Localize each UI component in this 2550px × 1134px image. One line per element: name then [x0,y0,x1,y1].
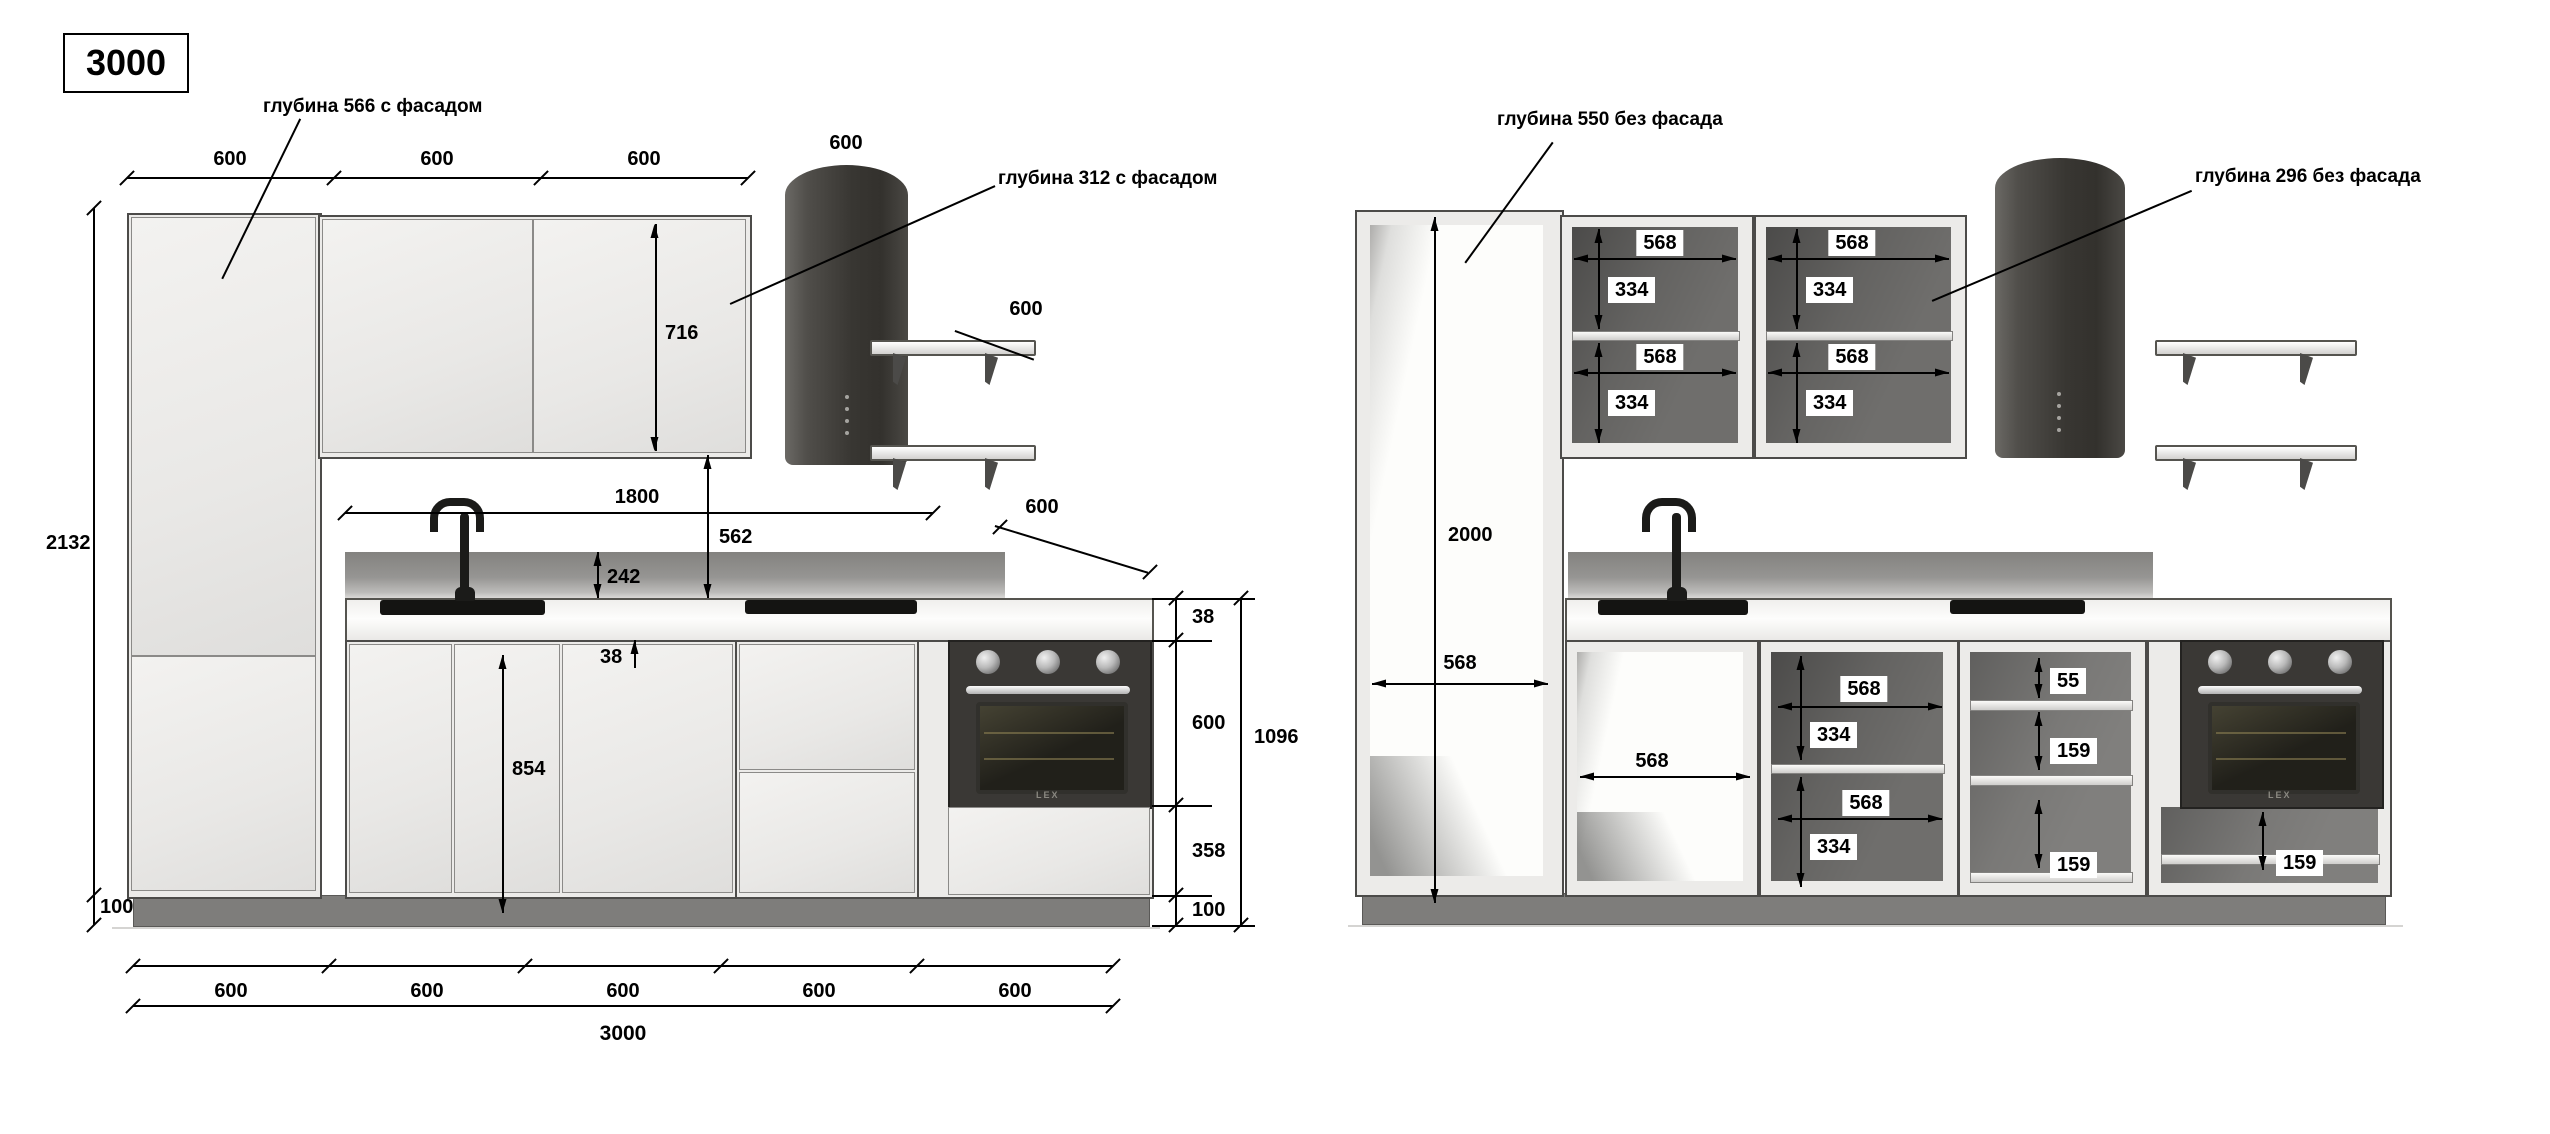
hood-control-dot [2057,428,2061,432]
hood-control-dot [2057,392,2061,396]
dim-label-shelf-width: 600 [1009,298,1042,320]
dim-label: 334 [1806,390,1853,416]
wall-shelf [870,340,1036,356]
dim-arrow [1935,369,1949,377]
shelf-bracket [985,353,998,385]
dim-line [345,512,933,514]
dim-arrow [1793,429,1801,443]
dim-label: 334 [1806,277,1853,303]
dim-arrow [2035,712,2043,726]
dim-label: 38 [1192,606,1214,628]
dim-label: 159 [2050,738,2097,764]
dim-line [133,1005,1113,1007]
dim-label: 600 [1192,712,1225,734]
faucet-nozzle [430,520,438,532]
dim-line [1796,229,1798,329]
dim-line [127,177,748,179]
dim-arrow [2259,812,2267,826]
dim-arrow [1928,703,1942,711]
hood-control-dot [2057,404,2061,408]
dim-arrow [2035,658,2043,672]
dim-arrow [1595,343,1603,357]
dim-arrow [704,455,712,469]
cabinet-interior [2161,807,2378,883]
dim-line [1778,818,1942,820]
dim-label: 854 [512,758,545,780]
dim-arrow [1793,229,1801,243]
dim-line [1598,229,1600,329]
tall-cabinet-open [1355,210,1564,897]
base-door [562,644,733,893]
wall-cabinet-door-2 [533,219,746,453]
dim-line [502,655,504,913]
backsplash [345,552,1005,598]
dim-label: 100 [1192,899,1225,921]
faucet-nozzle [1642,520,1650,532]
dim-label: 568 [1828,230,1875,256]
dim-arrow [1935,255,1949,263]
dim-label: 568 [1636,344,1683,370]
dim-arrow [2259,856,2267,870]
dim-arrow [2035,800,2043,814]
dim-line [1778,706,1942,708]
cabinet-shelf [1766,331,1953,341]
dim-label: 159 [2050,852,2097,878]
shelf-bracket [2183,458,2196,490]
hood-control-dot [845,419,849,423]
tall-cabinet-lower-door [131,656,316,891]
dim-line [93,208,95,925]
dim-ext-line [1152,640,1212,642]
dim-line [1800,777,1802,887]
dim-arrow [1797,746,1805,760]
interior-shadow [1577,812,1743,881]
oven-handle [2198,686,2362,694]
oven-knob [1036,650,1060,674]
floor-line [1348,925,2403,927]
oven-rack [2216,758,2346,760]
tall-cabinet-upper-door [131,217,316,656]
dim-arrow [1722,255,1736,263]
dim-arrow [1793,315,1801,329]
dim-line [1434,217,1436,903]
dim-label: 568 [1828,344,1875,370]
cabinet-shelf [1572,331,1740,341]
oven-knob [2328,650,2352,674]
dim-ext-line [1152,805,1212,807]
note-depth-wall: глубина 312 с фасадом [998,168,1217,190]
dim-arrow [1797,777,1805,791]
dim-arrow [1595,229,1603,243]
dim-label: 334 [1810,834,1857,860]
dim-arrow [1595,315,1603,329]
hood-control-dot [845,395,849,399]
base-drawer-front [739,644,915,770]
dim-label: 600 [214,980,247,1002]
shelf-bracket [893,458,906,490]
oven-rack [984,758,1114,760]
oven-knob [976,650,1000,674]
base-door [349,644,452,893]
dim-label-total-width: 3000 [600,1022,647,1045]
dim-arrow [1768,255,1782,263]
dim-tick [992,519,1008,535]
drawer-box [1970,700,2133,711]
oven-rack [2216,732,2346,734]
sink [380,600,545,615]
dim-label: 568 [1636,230,1683,256]
dim-arrow [594,552,602,566]
cooktop [1950,600,2085,614]
dim-label: 2132 [46,532,91,554]
dim-label: 100 [100,896,133,918]
dim-arrow [1372,680,1386,688]
dim-label: 716 [665,322,698,344]
dim-arrow [1534,680,1548,688]
dim-label: 1800 [615,486,660,508]
dim-ext-line [1152,895,1212,897]
dim-arrow [1722,369,1736,377]
dim-arrow [651,437,659,451]
dim-arrow [631,640,639,654]
dim-arrow [594,584,602,598]
dim-arrow [2035,684,2043,698]
dim-label: 600 [998,980,1031,1002]
scheme-width-box: 3000 [63,33,189,93]
dim-arrow [1778,703,1792,711]
faucet-spout [1642,498,1696,532]
dim-arrow [1778,815,1792,823]
dim-label-counter-depth: 600 [1025,496,1058,518]
dim-label: 568 [1842,790,1889,816]
dim-label: 334 [1608,390,1655,416]
cooktop [745,600,917,614]
wall-shelf [2155,340,2357,356]
dim-line [1372,683,1548,685]
dim-label: 55 [2050,668,2086,694]
note-depth-wall: глубина 296 без фасада [2195,166,2421,188]
dim-arrow [1574,255,1588,263]
dim-line [1598,343,1600,443]
dim-line [133,965,1113,967]
dim-line [1175,598,1177,925]
dim-arrow [499,899,507,913]
oven-brand: LEX [2268,790,2292,800]
floor-line [112,927,1160,929]
drawer-box [2161,854,2380,865]
shelf-bracket [2300,353,2313,385]
dim-arrow [651,224,659,238]
tall-cabinet [127,213,322,899]
dim-label: 600 [606,980,639,1002]
dim-label: 600 [627,148,660,170]
faucet-base [1667,587,1687,601]
oven-knob [2268,650,2292,674]
dim-arrow [1431,889,1439,903]
oven-window [2208,702,2360,794]
dim-line [655,224,657,451]
oven-rack [984,732,1114,734]
dim-line [1796,343,1798,443]
interior-shadow [1370,756,1543,876]
dim-line [707,455,709,598]
kitchen-drawing-canvas: 3000 [0,0,2550,1134]
dim-label: 2000 [1448,524,1493,546]
hood-control-dot [2057,416,2061,420]
dim-label: 600 [420,148,453,170]
dim-label: 334 [1810,722,1857,748]
dim-line [1240,598,1242,925]
dim-label: 600 [802,980,835,1002]
dim-arrow [1797,873,1805,887]
scheme-width-label: 3000 [86,42,166,84]
cabinet-shelf [1771,764,1945,774]
hood-control-dot [845,431,849,435]
note-depth-tall: глубина 566 с фасадом [263,96,482,118]
dim-arrow [1793,343,1801,357]
dim-arrow [499,655,507,669]
shelf-bracket [2300,458,2313,490]
wall-shelf [870,445,1036,461]
dim-arrow [1580,773,1594,781]
oven-handle [966,686,1130,694]
plinth [133,895,1150,927]
shelf-bracket [985,458,998,490]
base-cooktop-cabinet [735,640,921,899]
dim-arrow [1431,217,1439,231]
dim-label: 568 [1443,652,1476,674]
dim-arrow [1928,815,1942,823]
drawer-box [1970,775,2133,786]
dim-label-hood-width: 600 [829,132,862,154]
note-depth-tall: глубина 550 без фасада [1497,109,1723,131]
dim-arrow [1574,369,1588,377]
oven-window [976,702,1128,794]
wall-shelf [2155,445,2357,461]
oven-knob [2208,650,2232,674]
dim-label: 568 [1840,676,1887,702]
dim-label: 334 [1608,277,1655,303]
dim-arrow [1768,369,1782,377]
dim-line [995,525,1148,573]
oven-drawer-front [948,807,1150,895]
faucet-base [455,587,475,601]
backsplash [1568,552,2153,598]
dim-line [1800,656,1802,760]
hood-control-dot [845,407,849,411]
dim-arrow [1736,773,1750,781]
dim-arrow [2035,756,2043,770]
dim-line [1580,776,1750,778]
base-door [739,772,915,893]
shelf-bracket [2183,353,2196,385]
dim-label: 1096 [1254,726,1299,748]
dim-arrow [2035,854,2043,868]
oven-brand: LEX [1036,790,1060,800]
oven-knob [1096,650,1120,674]
dim-label: 600 [213,148,246,170]
dim-label: 159 [2276,850,2323,876]
faucet-spout [430,498,484,532]
dim-arrow [1797,656,1805,670]
plinth [1362,893,2386,925]
cooker-hood [1995,158,2125,458]
dim-label: 358 [1192,840,1225,862]
wall-cabinet-door-1 [322,219,533,453]
dim-arrow [704,584,712,598]
dim-label: 242 [607,566,640,588]
dim-label: 38 [600,646,622,668]
dim-label: 562 [719,526,752,548]
dim-label: 600 [410,980,443,1002]
dim-arrow [1595,429,1603,443]
dim-label: 568 [1635,750,1668,772]
sink [1598,600,1748,615]
